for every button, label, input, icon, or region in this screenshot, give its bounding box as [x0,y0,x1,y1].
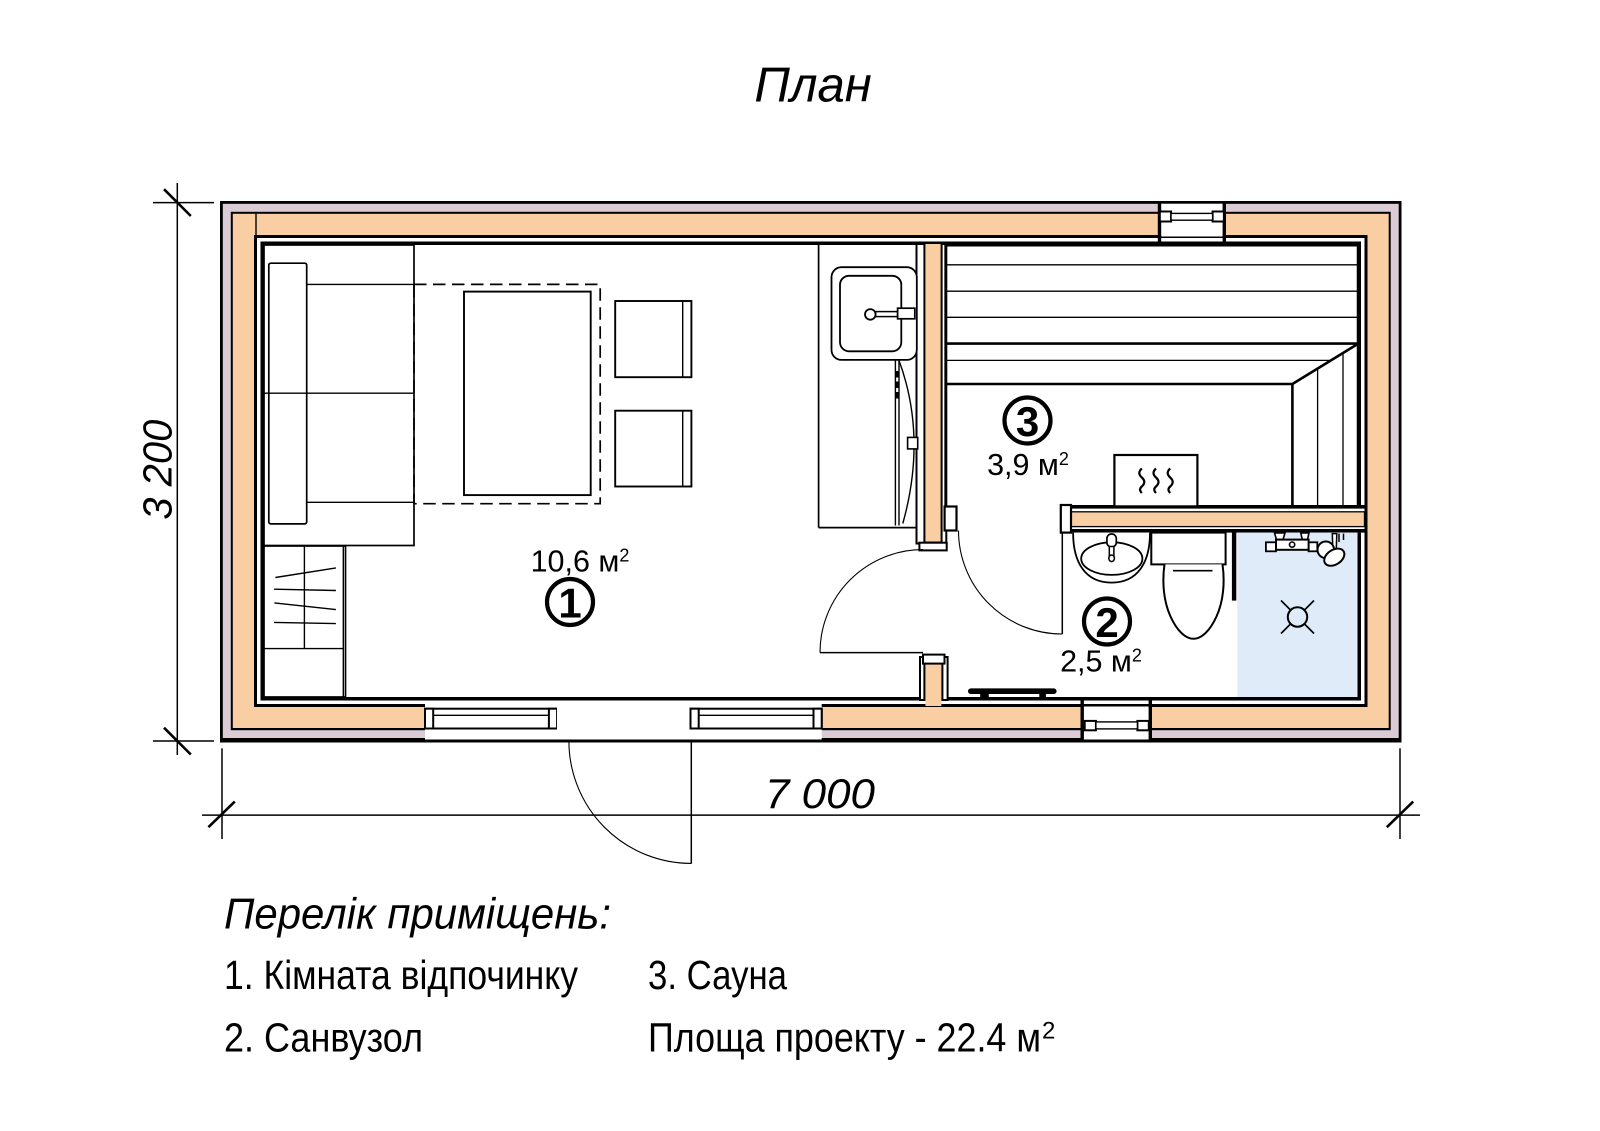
svg-text:1. Кімната відпочинку: 1. Кімната відпочинку [224,952,578,998]
svg-text:10,6 м2: 10,6 м2 [531,544,630,578]
svg-text:3,9 м2: 3,9 м2 [987,448,1069,482]
svg-text:3. Сауна: 3. Сауна [648,952,787,998]
svg-text:План: План [754,59,871,113]
svg-text:2: 2 [1095,599,1118,646]
svg-text:Площа проекту - 22.4 м: Площа проекту - 22.4 м [648,1015,1041,1061]
svg-text:Перелік приміщень:: Перелік приміщень: [224,889,611,938]
svg-text:7 000: 7 000 [765,770,876,817]
svg-text:2. Санвузол: 2. Санвузол [224,1015,423,1061]
svg-text:2,5 м2: 2,5 м2 [1060,645,1142,679]
svg-text:3 200: 3 200 [135,419,181,519]
svg-text:2: 2 [1042,1018,1055,1045]
svg-text:3: 3 [1016,398,1039,445]
svg-text:1: 1 [558,579,581,626]
